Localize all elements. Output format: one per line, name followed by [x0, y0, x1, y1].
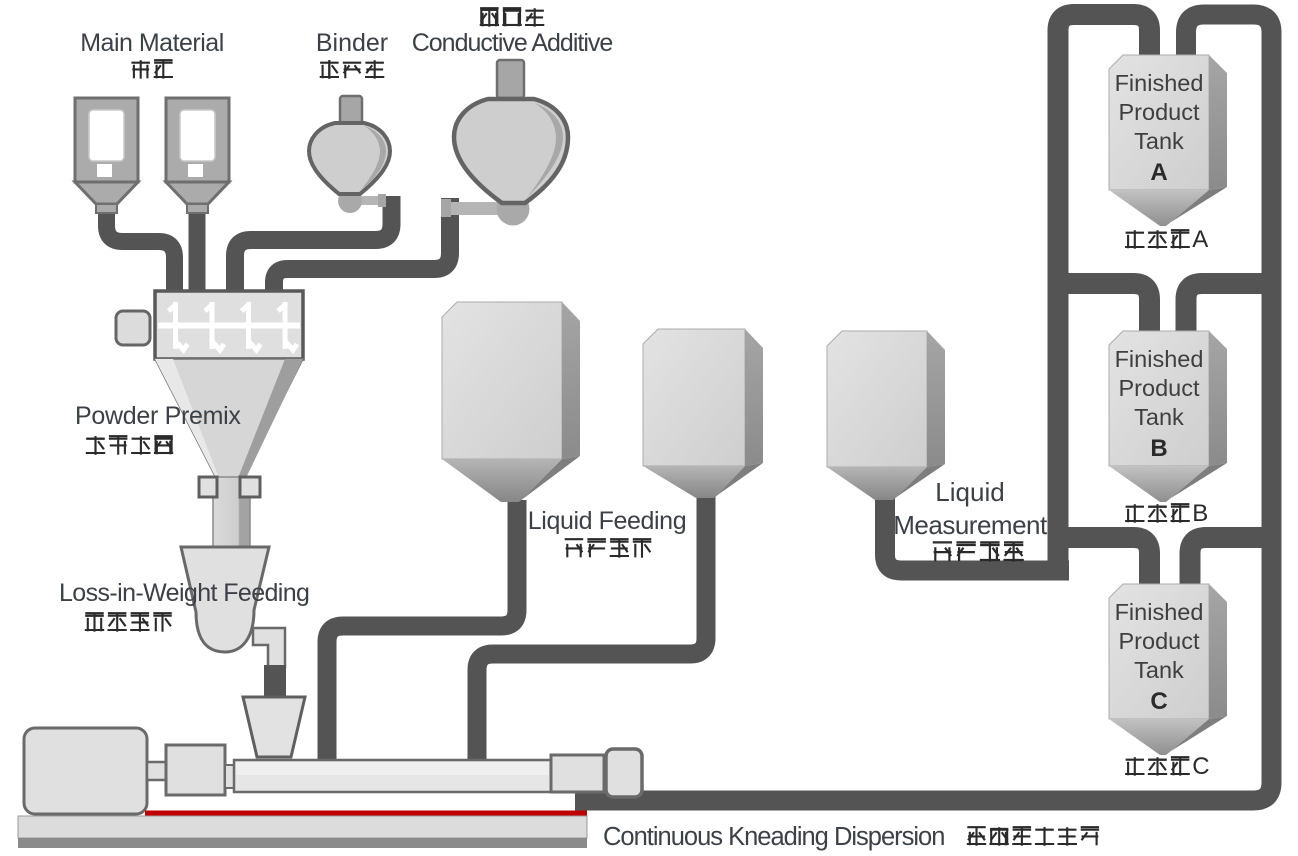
svg-text:B: B	[1192, 500, 1208, 527]
svg-text:A: A	[1192, 226, 1208, 253]
svg-text:B: B	[1150, 435, 1167, 462]
svg-text:A: A	[1150, 159, 1167, 186]
svg-text:Liquid Feeding: Liquid Feeding	[528, 507, 686, 535]
svg-text:Finished: Finished	[1115, 70, 1204, 96]
svg-text:Powder Premix: Powder Premix	[75, 402, 241, 430]
svg-text:Product: Product	[1119, 628, 1200, 654]
svg-text:Conductive Additive: Conductive Additive	[412, 29, 613, 57]
svg-text:Product: Product	[1119, 375, 1200, 401]
svg-text:Finished: Finished	[1115, 346, 1204, 372]
svg-text:Loss-in-Weight Feeding: Loss-in-Weight Feeding	[59, 579, 309, 607]
svg-text:Tank: Tank	[1134, 128, 1184, 154]
svg-text:Liquid: Liquid	[935, 477, 1004, 507]
svg-text:Product: Product	[1119, 99, 1200, 125]
svg-text:Tank: Tank	[1134, 404, 1184, 430]
svg-text:Finished: Finished	[1115, 599, 1204, 625]
svg-text:C: C	[1192, 753, 1209, 780]
svg-text:C: C	[1150, 688, 1167, 715]
svg-text:Continuous Kneading Dispersion: Continuous Kneading Dispersion	[603, 823, 944, 851]
svg-text:Binder: Binder	[316, 29, 388, 57]
svg-text:Main Material: Main Material	[80, 29, 224, 57]
svg-text:Measurement: Measurement	[893, 510, 1048, 540]
svg-text:Tank: Tank	[1134, 657, 1184, 683]
